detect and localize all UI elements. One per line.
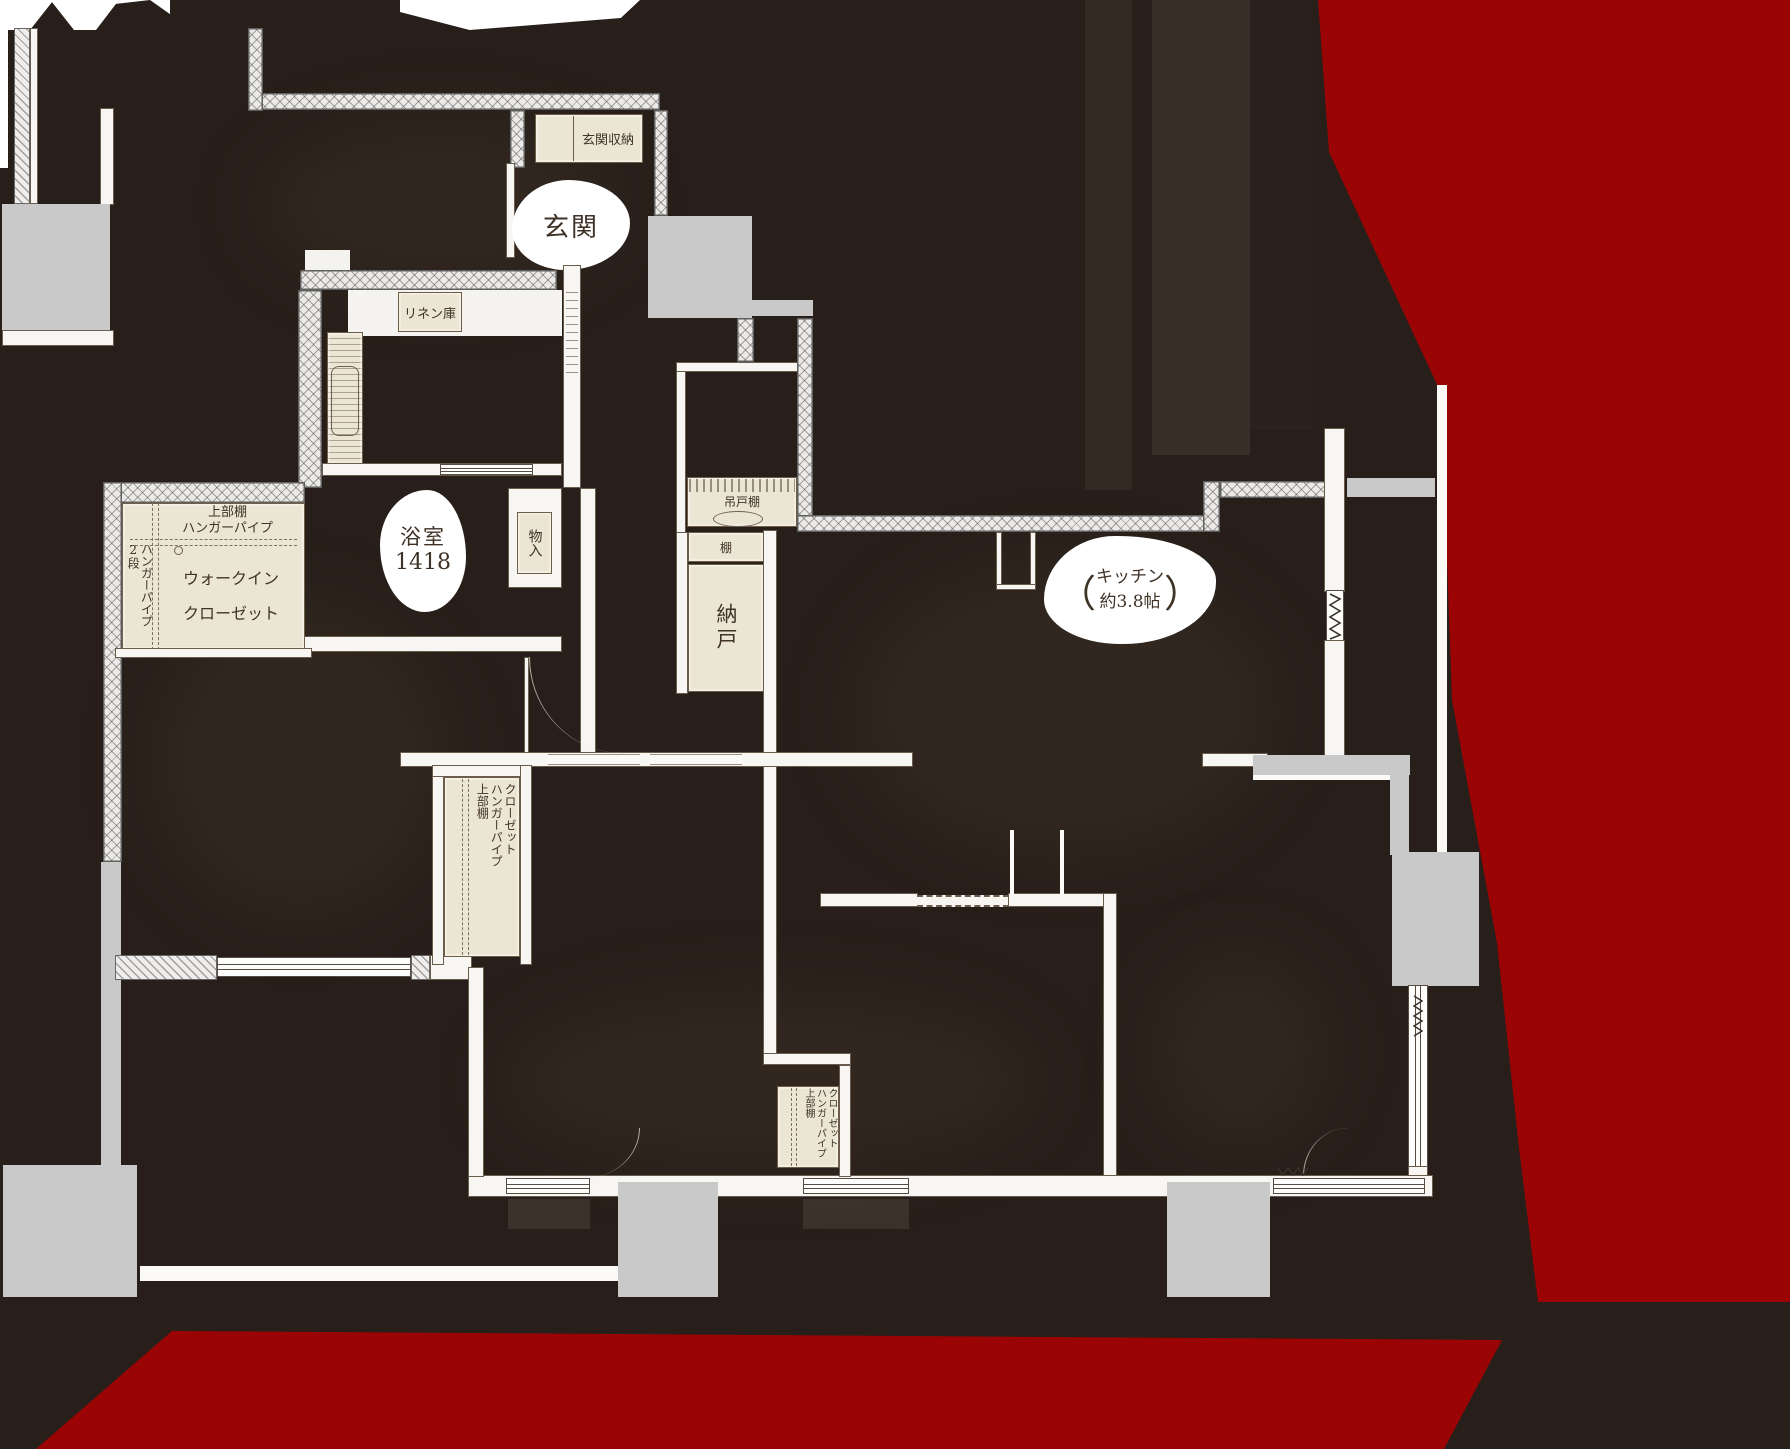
door-swing-arc-2 bbox=[585, 1128, 640, 1178]
window-shadow-1 bbox=[508, 1199, 590, 1229]
wall-left-white bbox=[30, 28, 38, 204]
wall-walkin-top bbox=[103, 482, 305, 503]
closet-a-wall-top bbox=[432, 765, 532, 777]
wall-walkin-bottom bbox=[115, 648, 312, 658]
door-panel-line-1 bbox=[1010, 830, 1014, 894]
balcony-pier-2 bbox=[1167, 1182, 1270, 1297]
bath-size-label: 1418 bbox=[395, 550, 451, 576]
wall-walkin-left bbox=[103, 482, 122, 862]
bath-sliding-door bbox=[440, 464, 533, 475]
wall-top-stub bbox=[248, 28, 263, 111]
cupboard-handle bbox=[713, 511, 763, 527]
walkin-pipe-dot bbox=[174, 546, 183, 555]
wall-corner-vertical bbox=[468, 967, 484, 1177]
window-bottom-3 bbox=[1273, 1178, 1425, 1194]
wall-kitchen-top-right bbox=[1220, 481, 1332, 498]
kitchen-paren-open: （ bbox=[1058, 563, 1096, 618]
linen-closet-box: リネン庫 bbox=[398, 292, 462, 332]
balcony-wall-left bbox=[101, 862, 121, 1167]
balcony-slab-left-edge bbox=[2, 330, 114, 346]
kitchen-recess-right bbox=[1030, 532, 1036, 590]
closet-a-label: クローゼット ハンガーパイプ 上部棚 bbox=[475, 783, 516, 951]
closet-b: クローゼット ハンガーパイプ 上部棚 bbox=[777, 1086, 839, 1168]
balcony-wall-underline bbox=[1253, 775, 1398, 780]
washroom-notch bbox=[305, 250, 350, 272]
light-patch-corner-room bbox=[1150, 950, 1330, 1150]
vanity-sink bbox=[331, 366, 359, 436]
entrance-storage-cabinet: 玄関収納 bbox=[535, 114, 643, 163]
wall-storeroom-right bbox=[763, 530, 777, 1063]
walk-in-closet-room: 上部棚 ハンガーパイプ ハンガーパイプ 2段 ウォークイン クローゼット bbox=[122, 503, 305, 650]
door-panel-line-2 bbox=[1060, 830, 1064, 894]
window-bottom-1 bbox=[506, 1178, 590, 1194]
entrance-storage-label: 玄関収納 bbox=[573, 114, 643, 163]
sliding-door-track bbox=[917, 895, 1009, 907]
balcony-slab-left-top bbox=[2, 204, 110, 330]
kitchen-size-label: 約3.8帖 bbox=[1096, 590, 1164, 616]
wall-top-concrete bbox=[248, 93, 660, 110]
kitchen-paren-close: ） bbox=[1164, 563, 1202, 618]
shelf-label: 棚 bbox=[720, 539, 732, 556]
storeroom-label: 納戸 bbox=[711, 603, 741, 653]
wall-toilet-top bbox=[676, 362, 800, 372]
wall-bottom-left-hatch-1 bbox=[115, 955, 217, 980]
closet-a-wall-right bbox=[520, 765, 532, 965]
balcony-slab-right bbox=[1392, 852, 1479, 986]
wall-porch-stub bbox=[737, 318, 754, 362]
washroom-door-lines bbox=[566, 292, 578, 378]
door-opening-2 bbox=[650, 754, 742, 765]
wall-entrance-left bbox=[510, 110, 525, 168]
hanging-cupboard-box: 吊戸棚 bbox=[687, 477, 797, 527]
closet-b-wall-right bbox=[839, 1065, 851, 1177]
spring-icon bbox=[1411, 993, 1425, 1039]
walkin-side-label: ハンガーパイプ 2段 bbox=[126, 543, 152, 646]
walkin-shelf-label: 上部棚 ハンガーパイプ bbox=[150, 505, 305, 538]
closet-b-dash-1 bbox=[791, 1088, 792, 1166]
wall-right-upper bbox=[1324, 428, 1345, 592]
storage-small-box: 物入 bbox=[517, 512, 552, 574]
bath-label: 浴室 bbox=[395, 525, 451, 550]
wall-left-inner bbox=[100, 108, 114, 205]
page-white-wedge bbox=[400, 0, 640, 30]
tone-band-1 bbox=[1085, 0, 1132, 490]
porch-slab bbox=[648, 216, 752, 318]
tone-band-2 bbox=[1152, 0, 1250, 455]
wall-right-lower bbox=[1324, 640, 1345, 757]
window-bottom-spring bbox=[1276, 1164, 1310, 1178]
wall-kitchen-top bbox=[797, 515, 1217, 532]
floor-plan-canvas: 玄関収納 玄関 リネン庫 浴室 1418 物入 上部棚 bbox=[0, 0, 1790, 1449]
spring-icon bbox=[1276, 1164, 1310, 1178]
balcony-wall-horizontal bbox=[1253, 755, 1410, 775]
door-opening-1 bbox=[548, 754, 640, 765]
walkin-name-label: ウォークイン クローゼット bbox=[160, 561, 302, 631]
ledge-right-top bbox=[1347, 478, 1435, 497]
wall-storeroom-left bbox=[676, 532, 688, 694]
closet-b-label: クローゼット ハンガーパイプ 上部棚 bbox=[803, 1088, 838, 1166]
wall-bath-bottom bbox=[300, 636, 562, 652]
door-leaf-line bbox=[524, 657, 529, 753]
wall-toilet-left bbox=[676, 362, 686, 534]
wall-corner-room-left bbox=[1103, 893, 1117, 1184]
closet-a-wall-left bbox=[432, 765, 444, 965]
wall-kitchen-step bbox=[1203, 481, 1220, 532]
wall-kitchen-left bbox=[797, 318, 813, 532]
bath-label-blob: 浴室 1418 bbox=[380, 490, 466, 612]
balcony-pier-1 bbox=[618, 1182, 718, 1297]
wall-bottom-left-hatch-2 bbox=[411, 955, 430, 980]
wall-washroom-left bbox=[298, 290, 322, 488]
wall-entrance-right bbox=[654, 110, 668, 216]
balcony-slab-bottom-left bbox=[3, 1165, 137, 1297]
window-bottom-left bbox=[217, 957, 411, 977]
window-corner-spring bbox=[1411, 993, 1425, 1039]
wall-partition-left bbox=[820, 893, 918, 907]
walkin-dash-line-2 bbox=[130, 545, 297, 546]
shelf-box: 棚 bbox=[688, 532, 764, 562]
window-right-spring bbox=[1326, 590, 1344, 642]
hanging-cupboard-label: 吊戸棚 bbox=[687, 491, 797, 511]
balcony-edge-line bbox=[140, 1266, 618, 1281]
door-swing-arc-1 bbox=[529, 657, 622, 753]
closet-a-dash-1 bbox=[462, 779, 463, 955]
entrance-label-blob: 玄関 bbox=[512, 180, 630, 270]
page-white-left-sliver bbox=[0, 28, 8, 168]
entrance-door-line bbox=[506, 163, 515, 258]
wall-partition-right bbox=[1008, 893, 1105, 907]
balcony-wall-vertical bbox=[1390, 775, 1409, 855]
spring-icon bbox=[1326, 590, 1344, 642]
walkin-dash-line-1 bbox=[130, 539, 297, 540]
kitchen-label: キッチン bbox=[1096, 565, 1164, 591]
kitchen-recess-left bbox=[996, 532, 1002, 590]
linen-closet-label: リネン庫 bbox=[404, 303, 456, 322]
closet-b-dash-2 bbox=[796, 1088, 797, 1166]
wall-washroom-top bbox=[300, 270, 557, 290]
closet-a: クローゼット ハンガーパイプ 上部棚 bbox=[444, 777, 520, 957]
window-bottom-2 bbox=[803, 1178, 909, 1194]
kitchen-recess-bottom bbox=[996, 584, 1036, 590]
wall-left-hatch bbox=[14, 28, 30, 204]
storage-small-label: 物入 bbox=[525, 529, 545, 557]
closet-a-dash-2 bbox=[468, 779, 469, 955]
storeroom-box: 納戸 bbox=[688, 564, 764, 692]
window-shadow-2 bbox=[803, 1199, 909, 1229]
closet-b-wall-top bbox=[763, 1053, 851, 1065]
tone-band-3 bbox=[1250, 0, 1312, 430]
entrance-label: 玄関 bbox=[543, 207, 599, 244]
